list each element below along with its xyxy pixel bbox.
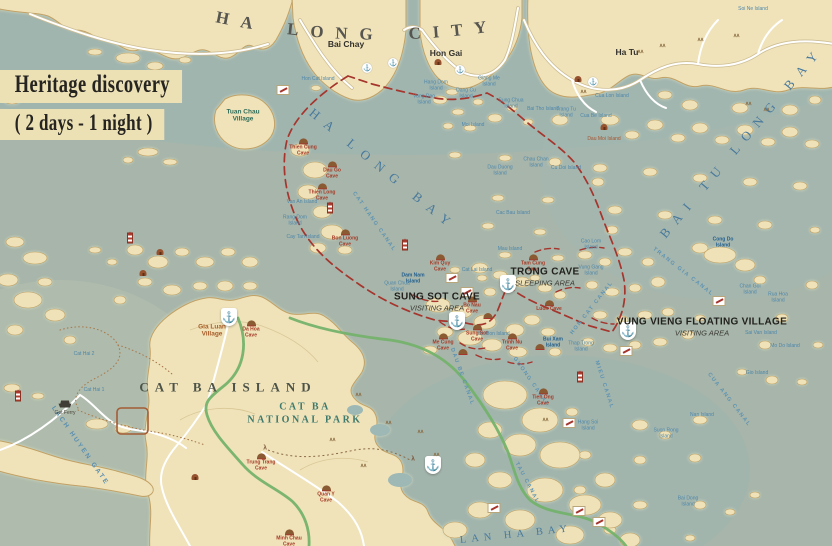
halong-bay-tour-map: HA LONG CITY Bai ChayHon GaiHa TuTuan Ch… [0,0,832,546]
map-subtitle: ( 2 days - 1 night ) [0,109,165,140]
map-title: Heritage discovery [0,70,182,103]
title-card: Heritage discovery ( 2 days - 1 night ) [0,70,246,140]
